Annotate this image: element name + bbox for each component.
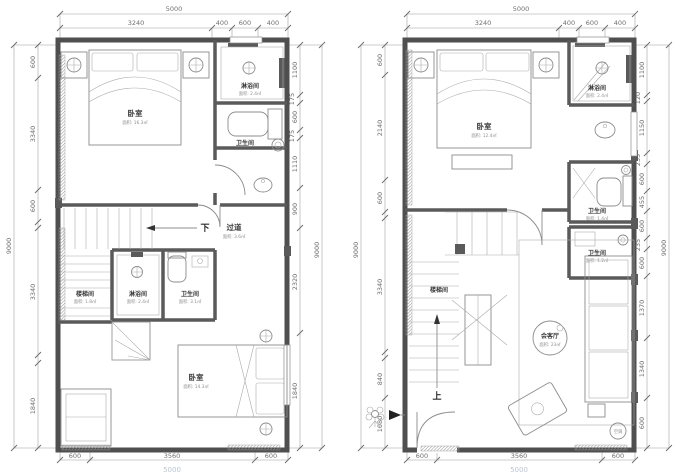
sofa-icon <box>61 389 111 446</box>
room-area: 面积: 14.3㎡ <box>183 383 209 390</box>
rug <box>519 240 634 425</box>
room-wc-top: 卫生间 <box>228 109 284 151</box>
room-stairwell: 楼梯间 面积: 1.8㎡ <box>60 256 110 316</box>
room-area: 面积: 12.4㎡ <box>471 132 497 139</box>
dim-label: 600 <box>638 173 646 185</box>
dim-label: 400 <box>216 19 228 27</box>
sink-icon <box>254 178 272 192</box>
bed-icon <box>89 50 181 145</box>
room-label: 过道 <box>227 222 242 232</box>
lamp-icon <box>414 58 428 72</box>
dim-label: 3240 <box>475 19 492 27</box>
room-area: 面积: 2.4㎡ <box>239 90 262 97</box>
dim-chain-left: 9000 600 2140 600 3340 840 1080 <box>352 42 405 451</box>
lamp-icon <box>539 58 553 72</box>
dim-label: 600 <box>29 56 37 68</box>
dim-label: 400 <box>267 19 279 27</box>
down-arrow-icon <box>146 225 197 231</box>
dim-chain-top: 5000 3240 400 600 400 <box>57 5 291 40</box>
shower-icon <box>242 61 256 75</box>
ac-label: 空调 <box>614 428 623 435</box>
sink-icon <box>595 122 615 138</box>
room-wc-lower: 卫生间 面积: 1.2㎡ <box>575 232 628 264</box>
lamp-icon <box>260 423 272 435</box>
dim-chain-right: 1100 175 600 175 1110 900 2320 1840 9000 <box>287 42 325 451</box>
lounge-chair-icon <box>507 382 567 436</box>
room-area: 面积: 2.4㎡ <box>127 298 150 305</box>
room-area: 面积: 16.3㎡ <box>122 119 148 126</box>
stair-direction-label: 下 <box>200 223 209 234</box>
room-label: 会客厅 <box>541 332 559 340</box>
room-label: 楼梯间 <box>430 286 448 294</box>
dim-label: 3560 <box>164 452 181 460</box>
room-area: 面积: 1.8㎡ <box>74 298 97 305</box>
floor-plan-drawing: 5000 3240 400 600 400 9000 600 3340 600 … <box>0 0 694 473</box>
dim-label: 600 <box>239 19 251 27</box>
dim-label: 600 <box>612 452 624 460</box>
dim-label: 900 <box>291 203 299 215</box>
shower-icon <box>131 266 143 278</box>
room-label: 淋浴间 <box>588 84 606 92</box>
dim-label: 2320 <box>291 274 299 291</box>
stair-direction-label: 上 <box>432 390 441 402</box>
dim-label: 1370 <box>638 300 646 317</box>
side-table <box>588 404 605 417</box>
room-label: 淋浴间 <box>241 82 259 90</box>
dim-label: 9000 <box>660 240 668 257</box>
dim-label: 600 <box>69 452 81 460</box>
dim-label: 5000 <box>166 5 183 13</box>
dim-label: 3340 <box>29 284 37 301</box>
dim-label: 400 <box>614 19 626 27</box>
winder-stairs <box>112 322 150 360</box>
dim-label: 455 <box>638 196 646 208</box>
water-heater-icon <box>622 166 631 175</box>
dim-label-cut: 5000 <box>510 466 528 473</box>
room-living: 会客厅 面积: 23㎡ 空调 <box>417 240 634 448</box>
room-label: 卧室 <box>189 372 204 382</box>
dim-label: 840 <box>376 373 384 385</box>
dim-label: 5000 <box>513 5 530 13</box>
toilet-icon <box>228 109 282 139</box>
corridor-stairs: 下 过道 面积: 3.6㎡ <box>64 208 246 249</box>
dim-label: 3340 <box>29 126 37 143</box>
up-arrow-icon <box>434 314 440 388</box>
room-label: 卫生间 <box>181 290 199 298</box>
floor-plan-right: 5000 3240 400 600 400 9000 600 2140 600 … <box>347 0 694 473</box>
lamp-icon <box>67 58 81 72</box>
dim-label: 3340 <box>376 279 384 296</box>
dim-label: 600 <box>586 19 598 27</box>
dim-label: 600 <box>291 111 299 123</box>
bench <box>452 155 512 169</box>
room-label: 卧室 <box>128 108 143 118</box>
dim-label: 600 <box>376 192 384 204</box>
dim-label: 600 <box>376 54 384 66</box>
room-shower: 淋浴间 面积: 2.4㎡ <box>573 46 630 101</box>
dim-label-cut: 5000 <box>163 466 181 473</box>
room-area: 面积: 2.4㎡ <box>586 92 609 99</box>
room-shower-top: 淋浴间 面积: 2.4㎡ <box>221 47 283 99</box>
dim-label: 600 <box>638 417 646 429</box>
dim-label: 3560 <box>511 452 528 460</box>
toilet-icon <box>168 252 186 282</box>
room-label: 卧室 <box>477 121 492 131</box>
toilet-icon <box>597 176 632 206</box>
dim-label: 1840 <box>291 383 299 400</box>
hatch-strips <box>59 55 280 450</box>
dim-label: 2140 <box>376 120 384 137</box>
sink-nook <box>595 122 615 138</box>
dim-label: 1840 <box>29 398 37 415</box>
entry-door-arc <box>417 412 455 448</box>
room-stairwell: 楼梯间 上 <box>409 212 519 402</box>
floor-plan-left: 5000 3240 400 600 400 9000 600 3340 600 … <box>0 0 347 473</box>
room-area: 面积: 3.1㎡ <box>179 298 202 305</box>
walls <box>405 37 638 453</box>
dim-label: 9000 <box>5 238 13 255</box>
passage-fixtures <box>198 165 272 227</box>
dim-label: 9000 <box>313 242 321 259</box>
dim-label: 600 <box>638 220 646 232</box>
room-area: 面积: 1.4㎡ <box>586 215 609 222</box>
dim-chain-right: 1100 120 1150 235 600 455 600 235 600 13… <box>634 42 672 451</box>
dim-label: 3240 <box>128 19 145 27</box>
dim-label: 1100 <box>638 62 646 79</box>
lamp-icon <box>189 58 203 72</box>
dim-chain-top: 5000 3240 400 600 400 <box>404 5 638 40</box>
dim-label: 600 <box>638 257 646 269</box>
room-shower-mid: 淋浴间 面积: 2.4㎡ <box>117 252 159 315</box>
dim-chain-bottom: 600 3560 600 5000 <box>404 452 638 473</box>
room-bedroom: 卧室 面积: 12.4㎡ <box>408 50 559 245</box>
dim-label: 600 <box>265 452 277 460</box>
entry-marker <box>366 407 405 428</box>
dim-label: 9000 <box>352 242 360 259</box>
room-wc-upper: 卫生间 面积: 1.4㎡ <box>573 166 632 223</box>
room-area: 面积: 23㎡ <box>539 341 561 348</box>
room-label: 卫生间 <box>236 139 254 147</box>
dim-label: 600 <box>29 200 37 212</box>
room-bedroom-bottom: 卧室 面积: 14.3㎡ <box>61 330 287 446</box>
sink-icon <box>192 256 208 267</box>
dim-label: 1100 <box>291 62 299 79</box>
room-wc-mid: 卫生间 面积: 3.1㎡ <box>168 252 208 305</box>
dim-chain-left: 9000 600 3340 600 3340 1840 <box>5 42 58 451</box>
room-area: 面积: 3.6㎡ <box>223 233 246 240</box>
sink-icon <box>575 232 595 246</box>
room-label: 淋浴间 <box>129 290 147 298</box>
dim-label: 1110 <box>291 156 299 173</box>
dim-label: 1150 <box>638 120 646 137</box>
room-label: 楼梯间 <box>76 290 94 298</box>
dim-label: 1340 <box>638 361 646 378</box>
ac-badge: 空调 <box>610 423 626 439</box>
room-label: 卫生间 <box>588 207 606 215</box>
room-bedroom-top: 卧室 面积: 16.3㎡ <box>61 50 209 145</box>
door-arc <box>215 165 245 195</box>
lamp-icon <box>260 330 272 342</box>
dim-label: 400 <box>563 19 575 27</box>
dim-label: 600 <box>416 452 428 460</box>
dim-chain-bottom: 600 3560 600 5000 <box>57 452 291 473</box>
